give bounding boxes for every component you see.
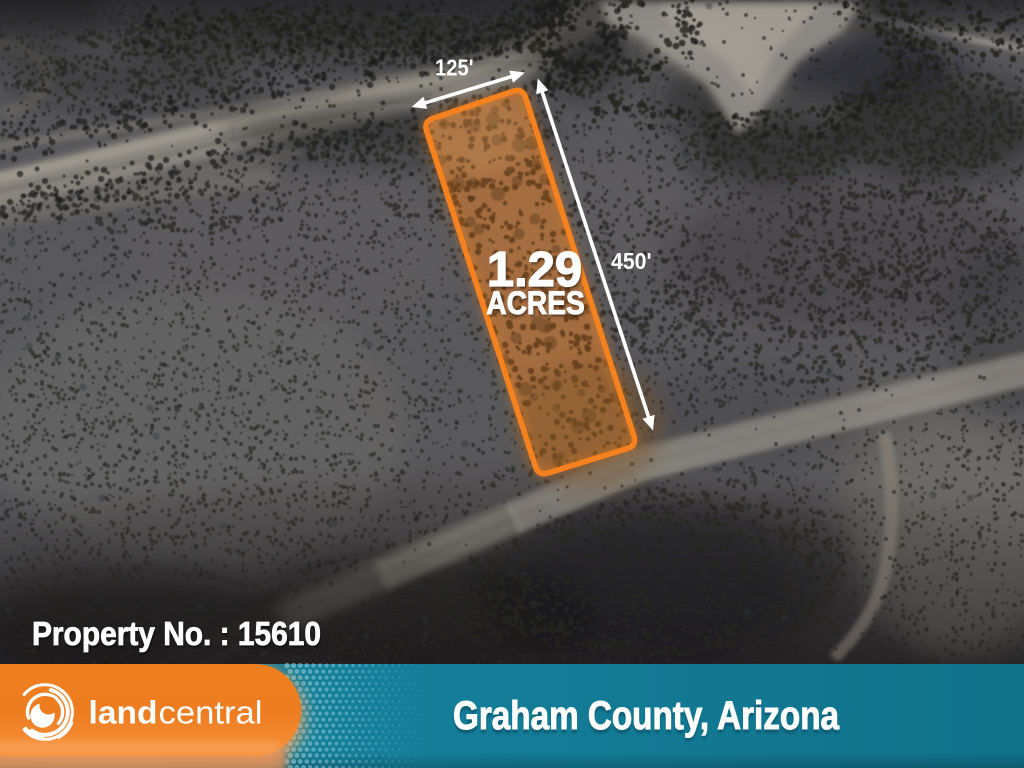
svg-text:central: central — [159, 695, 263, 731]
svg-text:land: land — [89, 695, 158, 731]
svg-text:125': 125' — [435, 55, 474, 81]
svg-text:Graham County, Arizona: Graham County, Arizona — [453, 694, 840, 738]
svg-text:450': 450' — [611, 248, 652, 274]
svg-text:ACRES: ACRES — [486, 285, 585, 321]
svg-text:Property No. : 15610: Property No. : 15610 — [32, 616, 321, 653]
